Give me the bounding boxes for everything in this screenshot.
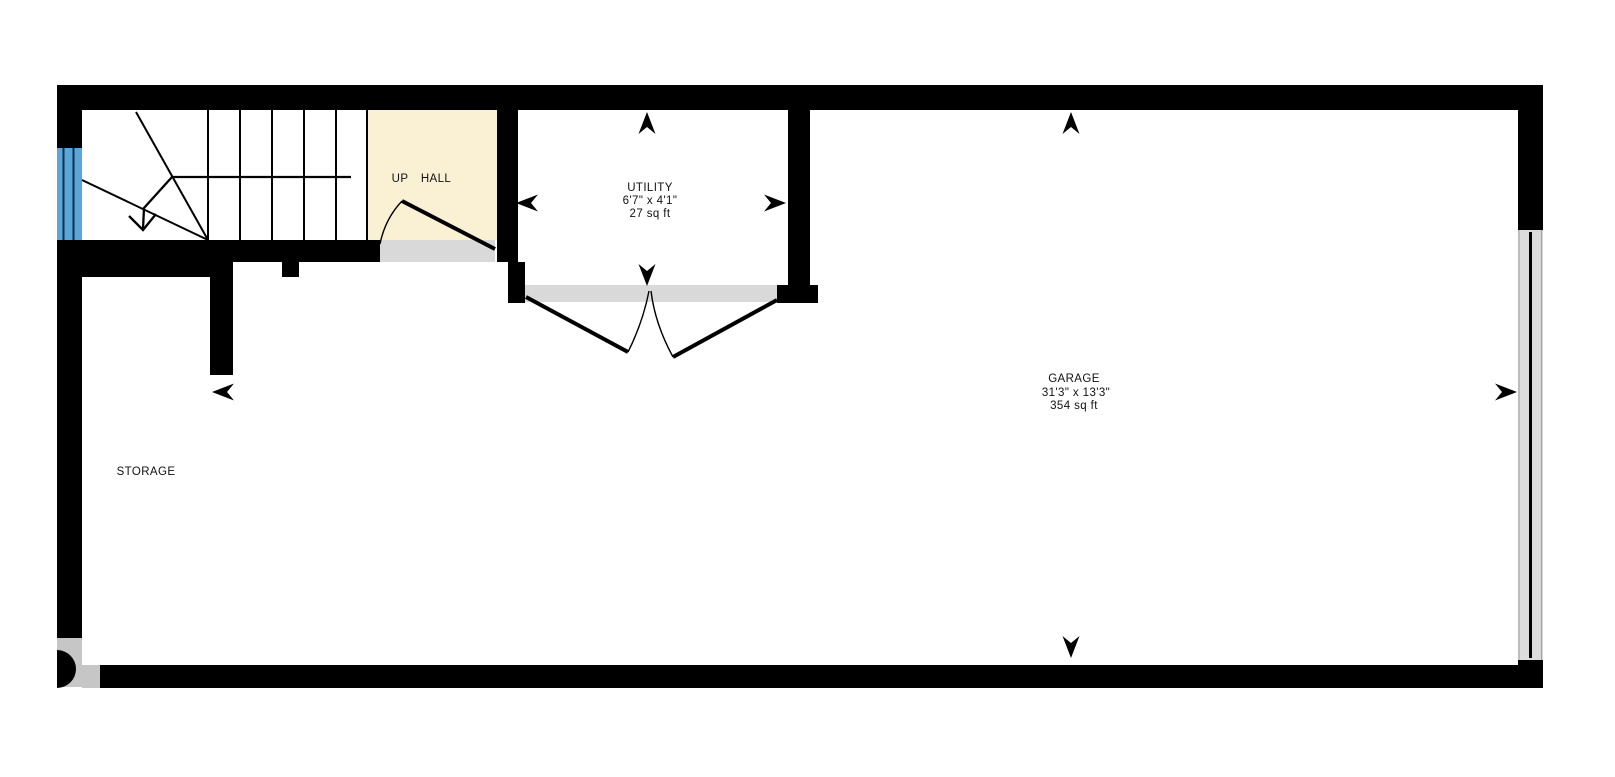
label-hall-name: HALL — [421, 173, 452, 185]
utility-door-block-left — [508, 262, 525, 303]
wall-right-upper — [1518, 85, 1543, 230]
label-garage-area: 354 sq ft — [1050, 400, 1098, 412]
label-garage-dimensions: 31'3" x 13'3" — [1042, 387, 1110, 399]
label-hall-up: UP — [392, 173, 409, 185]
wall-pilaster — [282, 262, 299, 277]
utility-door-leaf-left — [526, 297, 628, 352]
dim-arrow-utility-down-icon — [639, 264, 656, 286]
label-garage-name: GARAGE — [1048, 373, 1100, 385]
hall-door-threshold — [380, 240, 495, 262]
label-utility-dimensions: 6'7" x 4'1" — [623, 195, 678, 207]
dim-arrow-utility-up-icon — [639, 112, 656, 134]
dim-arrow-utility-left-icon — [516, 195, 538, 212]
utility-door-leaf-right — [673, 300, 777, 357]
label-utility-area: 27 sq ft — [630, 208, 671, 220]
floor-plan-page: UP HALL UTILITY 6'7" x 4'1" 27 sq ft GAR… — [0, 0, 1615, 777]
dim-arrow-garage-up-icon — [1063, 112, 1080, 134]
utility-wall-left — [497, 108, 518, 262]
corner-door-threshold-horizontal — [82, 665, 100, 688]
window-glass — [57, 145, 82, 240]
garage-door-rail — [1529, 232, 1532, 658]
dim-arrow-storage-left-icon — [212, 384, 234, 401]
interior-wall-stair-bottom — [57, 240, 380, 262]
floor-plan: UP HALL UTILITY 6'7" x 4'1" 27 sq ft GAR… — [0, 0, 1615, 777]
interior-wall-understair — [210, 262, 233, 375]
window-cap — [57, 143, 82, 148]
dim-arrow-utility-right-icon — [764, 195, 786, 212]
dim-arrow-garage-down-icon — [1063, 636, 1080, 658]
label-utility-name: UTILITY — [627, 182, 673, 194]
wall-right-stub — [1518, 660, 1543, 688]
dim-arrow-garage-right-icon — [1495, 384, 1517, 401]
wall-left-lower — [57, 240, 82, 638]
wall-top — [57, 85, 1543, 110]
label-storage-name: STORAGE — [117, 466, 176, 478]
window-left — [57, 143, 82, 240]
utility-door-block-right — [777, 285, 818, 303]
stairs — [82, 110, 367, 240]
utility-wall-right — [788, 108, 810, 287]
wall-bottom — [100, 665, 1543, 688]
garage-door — [1518, 230, 1543, 660]
interior-wall-storage-top — [57, 262, 233, 277]
wall-left-upper — [57, 85, 82, 145]
stair-walk-line — [143, 177, 351, 229]
